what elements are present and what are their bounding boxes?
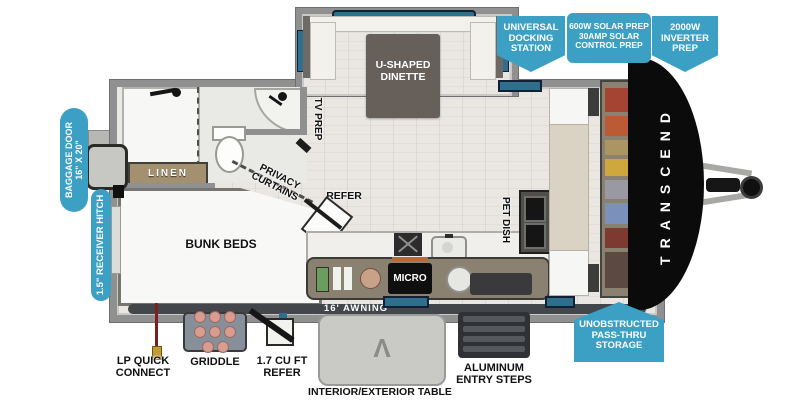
cabinet-accent-orange [392,257,428,261]
entry-mat [470,273,532,295]
pet-dish-station [519,190,551,254]
front-bed-platform [549,124,589,252]
baggage-door-icon [86,144,128,190]
sink-faucet-icon [278,92,287,101]
cabinet-knob-icon [360,268,381,289]
shower [122,87,200,171]
dinette-label-line1: U-SHAPED [366,60,440,72]
bathroom-wall-bottom [117,183,215,188]
front-counter-bottom [549,250,589,296]
tv-prep-label: TV PREP [308,88,326,150]
top-wall-window-icon [498,80,542,92]
floorplan-diagram: U-SHAPED DINETTE LINEN TV PREP PRIVACY C… [0,0,800,400]
pet-dish-label: PET DISH [497,189,513,251]
front-cabinet-top [588,88,599,116]
lp-hose-icon [155,303,158,348]
bunk-beds-label: BUNK BEDS [151,237,291,251]
linen-label: LINEN [130,164,206,184]
baggage-door-handle-icon [113,185,124,198]
jack-wheel-icon [740,176,763,199]
dinette-bench-left [310,22,336,80]
compact-refer-label: 1.7 CU FT REFER [247,355,317,380]
table-logo-icon: Λ [320,316,444,380]
shower-curtain-icon [197,87,199,167]
table-label: INTERIOR/EXTERIOR TABLE [300,386,460,398]
cabinet-panel-white1 [333,267,341,290]
front-cap-brand: TRANSCEND [654,65,676,305]
front-counter-top [549,88,589,126]
bottom-window-icon [383,296,429,308]
callout-solar-prep: 600W SOLAR PREP 30AMP SOLAR CONTROL PREP [567,13,651,63]
micro-label: MICRO [388,263,432,294]
shower-head-icon [172,88,181,97]
bathroom-wall-horizontal [243,129,307,135]
tongue-jack-icon [706,178,740,192]
callout-inverter-prep: 2000W INVERTER PREP [652,16,718,72]
cabinet-dial-icon [446,266,473,293]
griddle-label: GRIDDLE [183,356,247,368]
cabinet-panel-green [316,267,329,292]
lp-quick-connect-label: LP QUICK CONNECT [103,355,183,380]
cabinet-panel-white2 [344,267,352,290]
microwave: MICRO [388,263,432,294]
griddle-icon [183,312,247,352]
dinette-bench-right [470,22,496,80]
bathroom-wall-vertical [300,87,307,133]
dinette-bench-back-left [303,16,310,78]
entry-steps-icon [458,312,530,358]
callout-receiver-hitch: 1.5" RECEIVER HITCH [91,189,111,301]
bottom-window2-icon [545,296,575,308]
bunk-beds: BUNK BEDS [118,188,322,306]
bunk-window-icon [111,206,121,274]
mini-refer-accent-icon [279,313,287,318]
table-icon: Λ [318,314,446,386]
dinette-table: U-SHAPED DINETTE [366,34,440,118]
stove-icon [394,233,422,256]
front-cabinet-bottom [588,264,599,292]
dinette-label-line2: DINETTE [366,72,440,84]
entry-steps-label: ALUMINUM ENTRY STEPS [448,362,540,387]
callout-baggage-door: BAGGAGE DOOR 16" X 20" [60,108,88,212]
